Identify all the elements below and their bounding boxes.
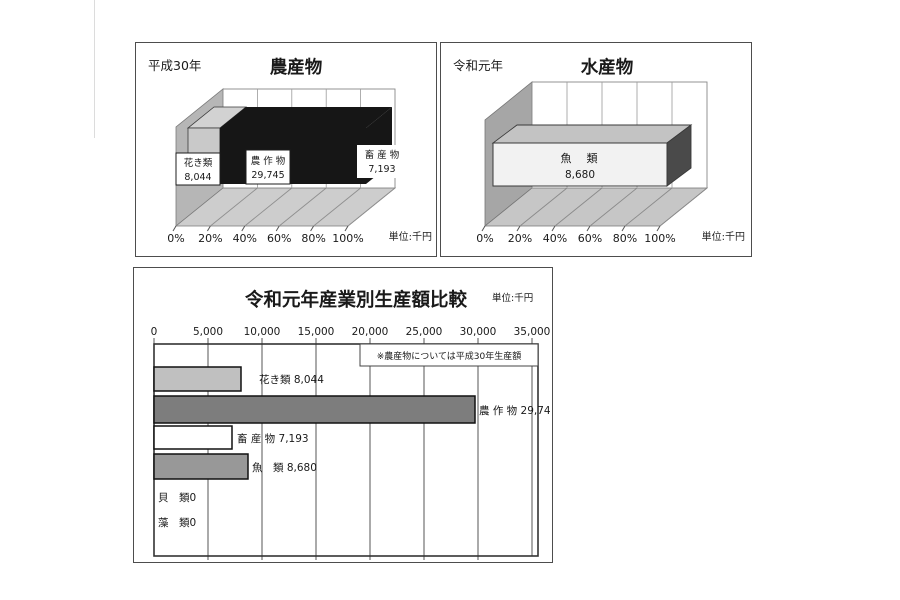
bar-label: 魚 類 8,680 (252, 461, 317, 474)
nousanbutsu-3d-chart: 平成30年 農産物 (136, 43, 435, 255)
x-tick-label: 40% (543, 232, 567, 245)
x-axis-labels: 0% 20% 40% 60% 80% 100% (476, 232, 675, 245)
bar-segment-dark-top (220, 107, 392, 128)
page: 平成30年 農産物 (0, 0, 900, 600)
bar-gyorui (154, 454, 248, 479)
note: ※農産物については平成30年生産額 (360, 344, 538, 366)
chart-title: 令和元年産業別生産額比較 (244, 289, 468, 311)
x-tick-label: 100% (644, 232, 675, 245)
axis-ticks (482, 226, 660, 231)
axis-ticks (173, 226, 348, 231)
x-tick-label: 100% (332, 232, 363, 245)
bar-hanaki (154, 367, 241, 391)
fish-bar-top (493, 125, 691, 143)
page-edge-line (94, 0, 95, 138)
x-tick-label: 60% (578, 232, 602, 245)
x-tick-label: 0 (151, 326, 158, 338)
segment-name: 農 作 物 (251, 155, 286, 167)
bar-label-sourui: 藻 類0 (158, 516, 196, 529)
segment-value: 29,745 (251, 170, 284, 181)
chart-title: 水産物 (581, 57, 634, 78)
x-tick-label: 35,000 (514, 326, 551, 338)
x-tick-label: 60% (267, 232, 291, 245)
chart-title: 農産物 (270, 57, 323, 78)
x-tick-label: 80% (301, 232, 325, 245)
x-tick-label: 0% (476, 232, 493, 245)
segment-name: 花き類 (184, 157, 213, 169)
note-text: ※農産物については平成30年生産額 (377, 350, 522, 362)
x-tick-label: 10,000 (244, 326, 281, 338)
x-tick-label: 20% (198, 232, 222, 245)
suisanbutsu-3d-chart: 令和元年 水産物 (441, 43, 750, 255)
hikaku-bar-chart: 令和元年産業別生産額比較 単位:千円 0 5,000 10,000 15,000… (134, 268, 551, 561)
bar-label: 畜 産 物 7,193 (237, 432, 309, 445)
x-tick-label: 0% (167, 232, 184, 245)
chart-panel-nousanbutsu: 平成30年 農産物 (135, 42, 437, 257)
segment-name: 魚 類 (561, 152, 600, 165)
segment-name: 畜 産 物 (365, 149, 400, 161)
x-axis-labels: 0 5,000 10,000 15,000 20,000 25,000 30,0… (151, 326, 551, 338)
x-tick-label: 80% (613, 232, 637, 245)
segment-value: 8,044 (184, 172, 211, 183)
segment-value: 8,680 (565, 169, 595, 181)
segment-value: 7,193 (368, 164, 395, 175)
bar-label: 農 作 物 29,745 (479, 404, 551, 417)
x-tick-label: 30,000 (460, 326, 497, 338)
year-label: 令和元年 (453, 58, 503, 73)
gridlines (208, 344, 532, 556)
x-tick-label: 20% (508, 232, 532, 245)
x-tick-label: 5,000 (193, 326, 223, 338)
bar-nosakubutsu (154, 396, 475, 423)
year-label: 平成30年 (148, 58, 201, 73)
chart-panel-hikaku: 令和元年産業別生産額比較 単位:千円 0 5,000 10,000 15,000… (133, 267, 553, 563)
unit-label: 単位:千円 (702, 230, 745, 243)
fish-bar: 魚 類 8,680 (493, 125, 691, 186)
bars: 花き類 8,044 農 作 物 29,745 畜 産 物 7,193 魚 類 8… (154, 367, 551, 529)
chart-panel-suisanbutsu: 令和元年 水産物 (440, 42, 752, 257)
x-tick-label: 40% (233, 232, 257, 245)
bar-segment-dark-front (220, 128, 366, 184)
unit-label: 単位:千円 (389, 230, 432, 243)
bar-label-kairui: 貝 類0 (158, 492, 196, 504)
x-axis-labels: 0% 20% 40% 60% 80% 100% (167, 232, 363, 245)
x-tick-label: 25,000 (406, 326, 443, 338)
bar-chikusan (154, 426, 232, 449)
bar-label: 花き類 8,044 (259, 373, 324, 386)
x-tick-label: 20,000 (352, 326, 389, 338)
x-tick-label: 15,000 (298, 326, 335, 338)
unit-label: 単位:千円 (492, 292, 533, 304)
